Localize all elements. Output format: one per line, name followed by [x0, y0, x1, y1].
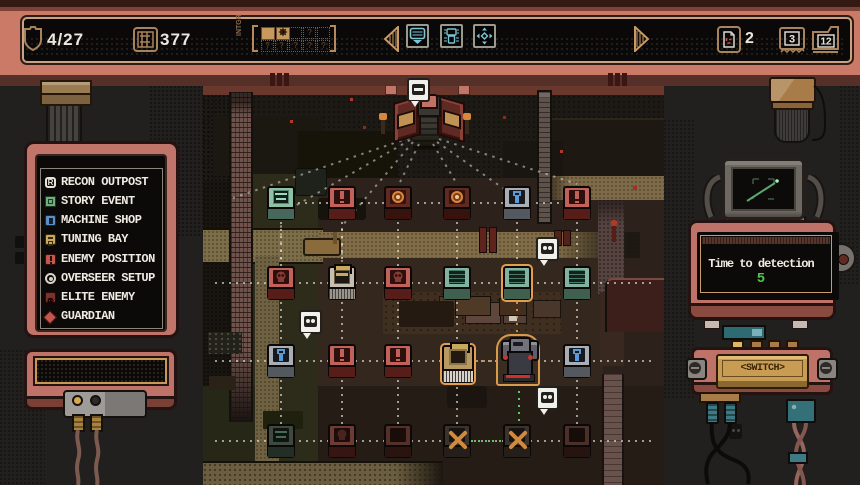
- svg-text:12: 12: [820, 37, 832, 48]
- svg-text:3: 3: [789, 34, 795, 46]
